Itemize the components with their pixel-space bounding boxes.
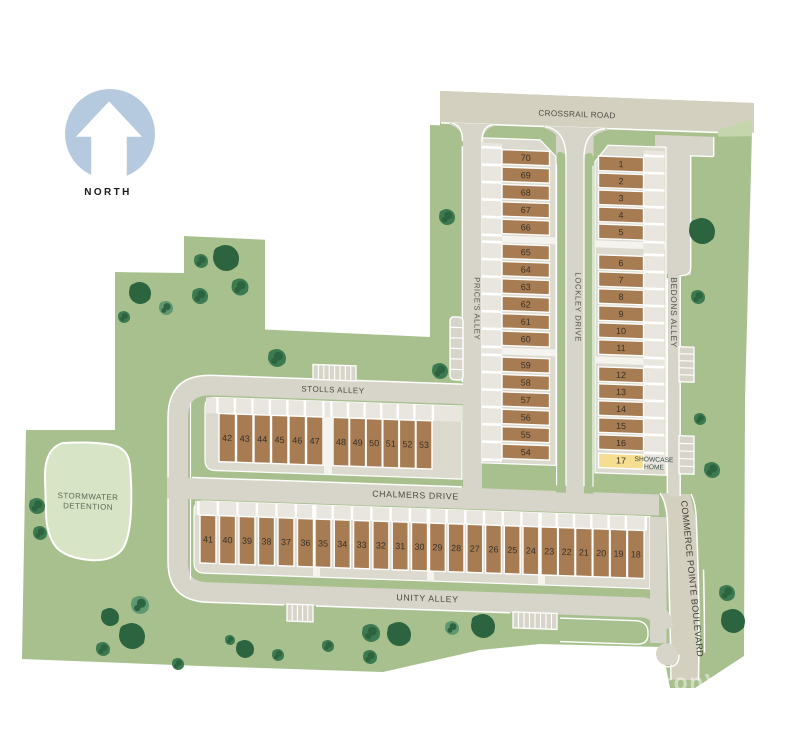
svg-text:PRICE'S ALLEY: PRICE'S ALLEY xyxy=(473,277,482,340)
svg-text:64: 64 xyxy=(521,264,531,274)
svg-text:54: 54 xyxy=(521,447,531,457)
svg-text:41: 41 xyxy=(203,534,213,544)
svg-text:22: 22 xyxy=(562,547,572,557)
svg-text:67: 67 xyxy=(521,205,531,215)
svg-text:47: 47 xyxy=(310,436,320,446)
svg-text:43: 43 xyxy=(240,433,250,443)
svg-text:29: 29 xyxy=(432,542,442,552)
svg-text:55: 55 xyxy=(521,430,531,440)
svg-text:ronVale: ronVale xyxy=(663,669,757,695)
svg-text:34: 34 xyxy=(337,539,347,549)
svg-text:42: 42 xyxy=(222,433,232,443)
svg-text:61: 61 xyxy=(521,317,531,327)
svg-text:NORTH: NORTH xyxy=(84,187,132,198)
svg-text:66: 66 xyxy=(521,222,531,232)
svg-text:12: 12 xyxy=(616,370,626,380)
svg-text:LOCKLEY DRIVE: LOCKLEY DRIVE xyxy=(574,272,583,342)
svg-text:7: 7 xyxy=(618,275,623,285)
svg-text:60: 60 xyxy=(521,334,531,344)
svg-text:32: 32 xyxy=(376,540,386,550)
svg-text:26: 26 xyxy=(488,544,498,554)
svg-text:40: 40 xyxy=(222,535,232,545)
svg-text:53: 53 xyxy=(419,440,429,450)
svg-text:44: 44 xyxy=(257,434,267,444)
svg-text:14: 14 xyxy=(616,404,626,414)
svg-text:6: 6 xyxy=(618,258,623,268)
svg-text:8: 8 xyxy=(618,292,623,302)
svg-text:50: 50 xyxy=(369,438,379,448)
svg-text:63: 63 xyxy=(521,282,531,292)
svg-text:23: 23 xyxy=(544,546,554,556)
svg-text:21: 21 xyxy=(579,547,589,557)
svg-text:38: 38 xyxy=(261,536,271,546)
svg-text:20: 20 xyxy=(596,548,606,558)
svg-text:28: 28 xyxy=(451,543,461,553)
svg-text:BEDONS ALLEY: BEDONS ALLEY xyxy=(669,277,679,348)
svg-text:62: 62 xyxy=(521,299,531,309)
svg-text:31: 31 xyxy=(395,541,405,551)
svg-text:18: 18 xyxy=(631,549,641,559)
svg-text:57: 57 xyxy=(521,395,531,405)
svg-text:48: 48 xyxy=(336,437,346,447)
svg-text:35: 35 xyxy=(318,538,328,548)
svg-text:5: 5 xyxy=(618,227,623,237)
svg-text:9: 9 xyxy=(618,309,623,319)
svg-text:37: 37 xyxy=(281,537,291,547)
svg-text:49: 49 xyxy=(353,437,363,447)
svg-text:25: 25 xyxy=(507,545,517,555)
svg-text:56: 56 xyxy=(521,412,531,422)
svg-text:3: 3 xyxy=(618,193,623,203)
svg-text:16: 16 xyxy=(616,438,626,448)
svg-text:69: 69 xyxy=(521,170,531,180)
svg-text:SHOWCASE: SHOWCASE xyxy=(634,456,674,464)
svg-text:1: 1 xyxy=(618,159,623,169)
svg-text:10: 10 xyxy=(616,326,626,336)
svg-text:39: 39 xyxy=(242,536,252,546)
svg-text:2: 2 xyxy=(618,176,623,186)
svg-text:19: 19 xyxy=(613,549,623,559)
svg-text:36: 36 xyxy=(300,538,310,548)
svg-text:17: 17 xyxy=(616,455,626,465)
svg-text:33: 33 xyxy=(357,540,367,550)
svg-text:13: 13 xyxy=(616,387,626,397)
svg-text:27: 27 xyxy=(470,544,480,554)
svg-text:DETENTION: DETENTION xyxy=(63,501,113,512)
svg-text:24: 24 xyxy=(526,546,536,556)
svg-text:52: 52 xyxy=(402,439,412,449)
svg-text:45: 45 xyxy=(275,435,285,445)
svg-text:HOME: HOME xyxy=(644,464,665,472)
svg-text:51: 51 xyxy=(386,439,396,449)
svg-text:30: 30 xyxy=(414,542,424,552)
svg-text:58: 58 xyxy=(521,377,531,387)
svg-text:15: 15 xyxy=(616,421,626,431)
svg-text:70: 70 xyxy=(521,153,531,163)
svg-text:4: 4 xyxy=(618,210,623,220)
svg-text:65: 65 xyxy=(521,247,531,257)
svg-text:59: 59 xyxy=(521,360,531,370)
svg-text:11: 11 xyxy=(616,343,625,353)
svg-text:68: 68 xyxy=(521,187,531,197)
svg-text:46: 46 xyxy=(292,435,302,445)
